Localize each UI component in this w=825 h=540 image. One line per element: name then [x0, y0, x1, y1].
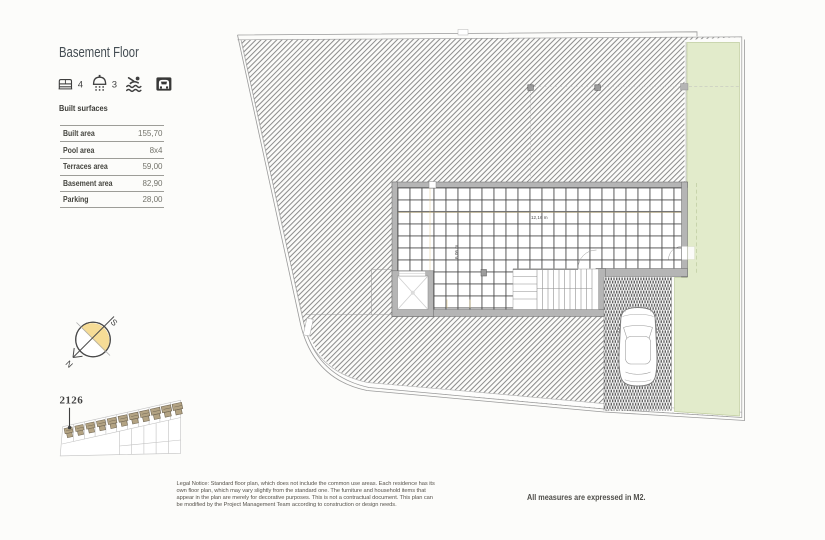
svg-text:N: N [64, 358, 75, 369]
svg-text:3: 3 [112, 79, 117, 90]
svg-text:4: 4 [78, 79, 83, 90]
svg-text:S: S [109, 317, 120, 328]
svg-text:2126: 2126 [60, 395, 84, 407]
